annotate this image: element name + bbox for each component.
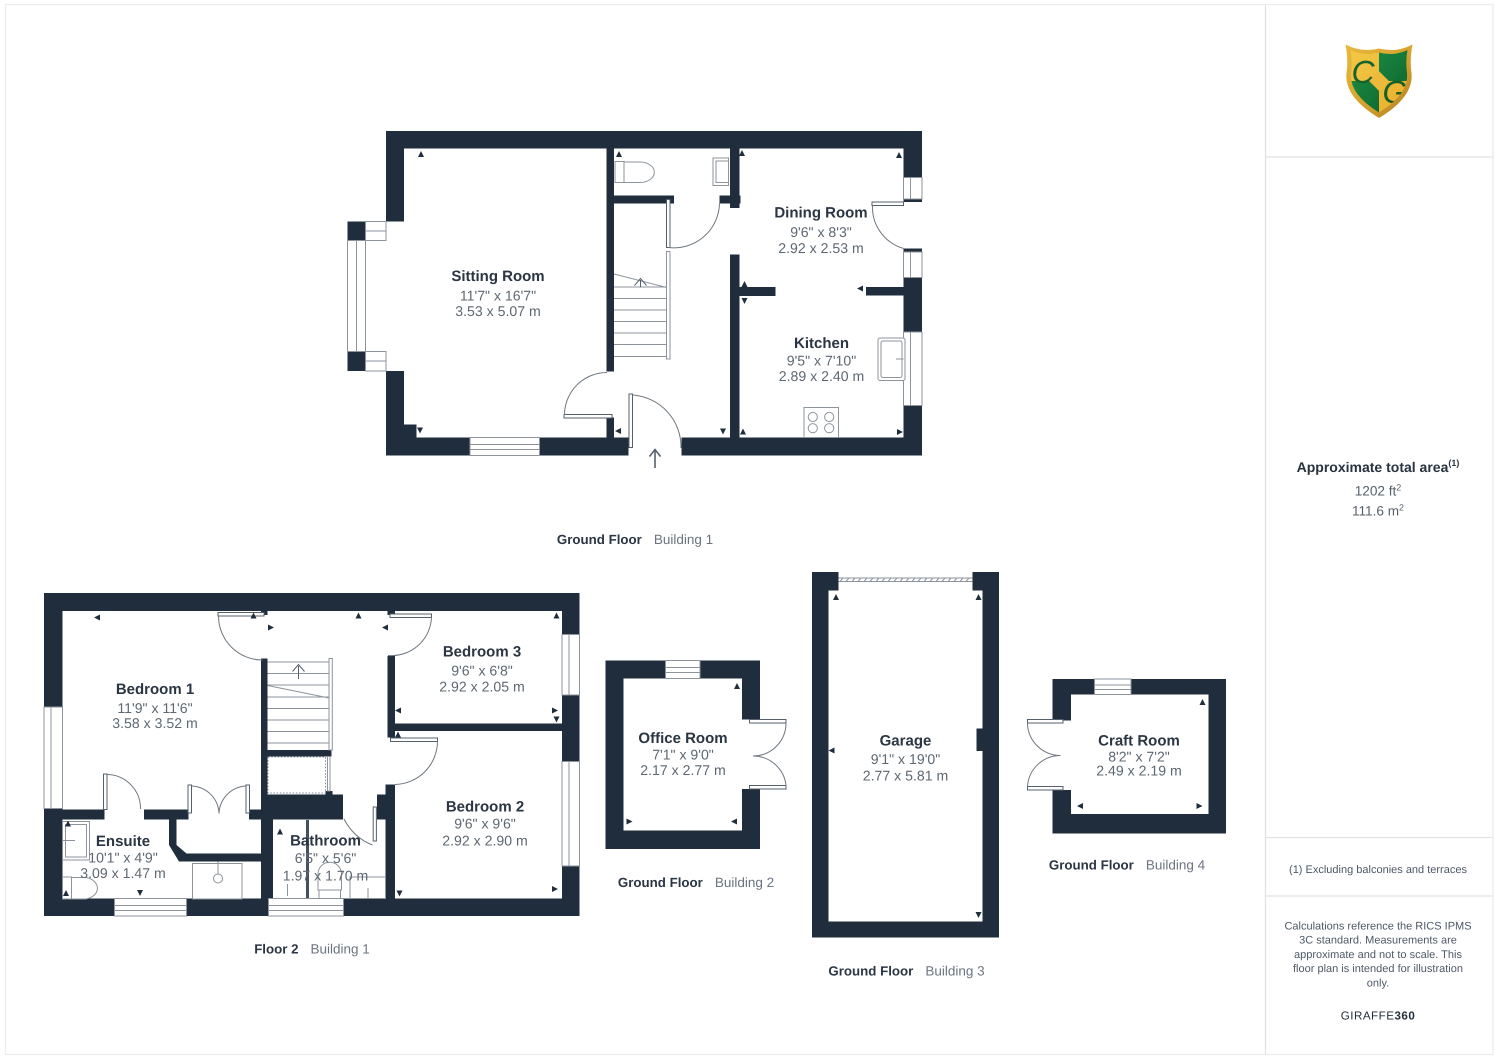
svg-text:Ground FloorBuilding 4: Ground FloorBuilding 4 [1049,858,1206,873]
svg-text:2.17 x 2.77 m: 2.17 x 2.77 m [640,762,725,778]
svg-text:Bedroom 1: Bedroom 1 [116,681,194,698]
svg-text:Bedroom 2: Bedroom 2 [446,799,524,816]
svg-text:Office Room: Office Room [638,730,727,747]
svg-text:3.53 x 5.07 m: 3.53 x 5.07 m [455,303,540,319]
svg-text:C: C [1351,54,1375,90]
svg-text:11'9" x 11'6": 11'9" x 11'6" [117,700,192,716]
svg-text:Bathroom: Bathroom [290,833,361,850]
svg-text:9'6" x 8'3": 9'6" x 8'3" [790,224,852,240]
svg-text:approximate and not to scale.: approximate and not to scale. This [1294,949,1462,961]
svg-text:1202 ft2: 1202 ft2 [1355,483,1402,499]
svg-text:Kitchen: Kitchen [794,335,849,352]
svg-text:Ground FloorBuilding 1: Ground FloorBuilding 1 [557,532,713,547]
svg-text:9'1" x 19'0": 9'1" x 19'0" [871,751,940,767]
svg-text:111.6 m2: 111.6 m2 [1352,503,1404,519]
svg-text:Garage: Garage [880,733,932,750]
svg-text:11'7" x 16'7": 11'7" x 16'7" [460,288,536,304]
svg-text:Sitting Room: Sitting Room [451,268,544,285]
svg-text:7'1" x 9'0": 7'1" x 9'0" [652,747,714,763]
svg-text:2.89 x 2.40 m: 2.89 x 2.40 m [779,368,864,384]
svg-text:3.09 x 1.47 m: 3.09 x 1.47 m [80,865,165,881]
svg-text:Ensuite: Ensuite [96,833,150,850]
svg-text:Bedroom 3: Bedroom 3 [443,644,521,661]
svg-text:Craft Room: Craft Room [1098,733,1180,750]
svg-text:9'5" x 7'10": 9'5" x 7'10" [787,353,856,369]
svg-text:Ground FloorBuilding 2: Ground FloorBuilding 2 [618,875,774,890]
svg-text:1.97 x 1.70 m: 1.97 x 1.70 m [283,868,368,884]
svg-text:2.77 x 5.81 m: 2.77 x 5.81 m [863,768,948,784]
svg-text:2.92 x 2.90 m: 2.92 x 2.90 m [442,833,527,849]
svg-text:2.92 x 2.05 m: 2.92 x 2.05 m [439,679,524,695]
svg-text:Floor 2Building 1: Floor 2Building 1 [254,942,370,957]
svg-text:Approximate total area(1): Approximate total area(1) [1297,458,1460,475]
svg-text:6'5" x 5'6": 6'5" x 5'6" [295,850,357,866]
svg-text:Ground FloorBuilding 3: Ground FloorBuilding 3 [828,964,984,979]
svg-text:10'1" x 4'9": 10'1" x 4'9" [88,850,157,866]
svg-text:floor plan is intended for ill: floor plan is intended for illustration [1293,963,1463,975]
svg-text:3.58 x 3.52 m: 3.58 x 3.52 m [112,715,197,731]
svg-text:3C standard. Measurements are: 3C standard. Measurements are [1299,935,1457,947]
svg-text:2.92 x 2.53 m: 2.92 x 2.53 m [778,240,863,256]
svg-text:Dining Room: Dining Room [774,205,867,222]
svg-text:only.: only. [1367,977,1389,989]
svg-text:GIRAFFE360: GIRAFFE360 [1341,1010,1416,1023]
svg-text:(1) Excluding balconies and te: (1) Excluding balconies and terraces [1289,864,1467,876]
svg-text:9'6" x 9'6": 9'6" x 9'6" [454,816,516,832]
svg-text:9'6" x 6'8": 9'6" x 6'8" [451,663,513,679]
svg-text:2.49 x 2.19 m: 2.49 x 2.19 m [1096,763,1181,779]
svg-text:Calculations reference the RIC: Calculations reference the RICS IPMS [1284,921,1471,933]
